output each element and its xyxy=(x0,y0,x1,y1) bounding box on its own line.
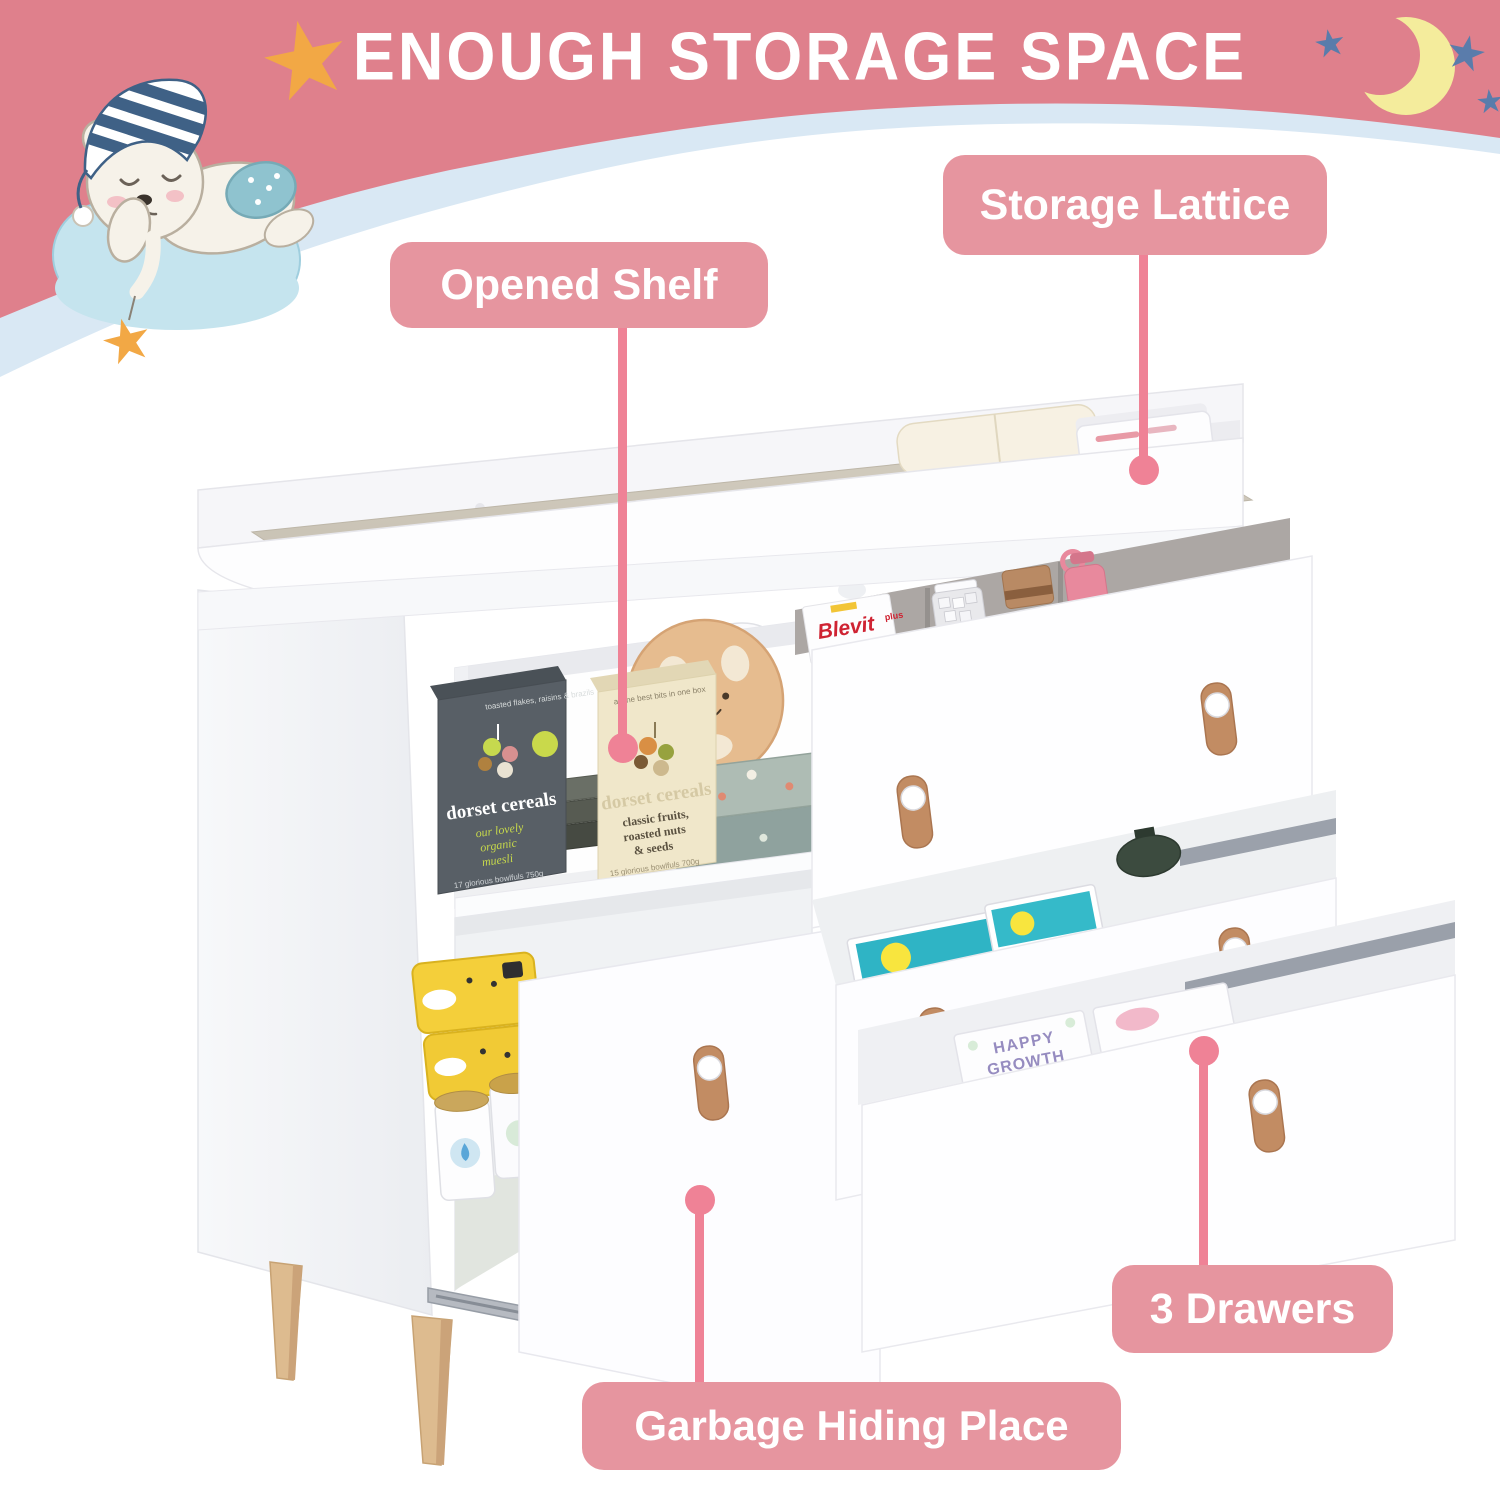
callout-text: Opened Shelf xyxy=(440,261,717,310)
callout-dot-garbage xyxy=(685,1185,715,1215)
wooden-leg-back xyxy=(270,1262,302,1380)
callout-label-opened-shelf: Opened Shelf xyxy=(390,242,768,328)
callout-text: Garbage Hiding Place xyxy=(634,1402,1068,1450)
wooden-leg-front xyxy=(412,1316,452,1465)
callout-line-opened-shelf xyxy=(618,326,627,736)
callout-line-garbage xyxy=(695,1210,704,1384)
callout-text: Storage Lattice xyxy=(980,181,1291,230)
product-infographic: ENOUGH STORAGE SPACE xyxy=(0,0,1500,1500)
cocoa-jar xyxy=(1001,565,1054,609)
cereal-box-cream: all the best bits in one box dorset cere… xyxy=(590,660,716,880)
callout-label-garbage-hiding-place: Garbage Hiding Place xyxy=(582,1382,1121,1470)
callout-line-3-drawers xyxy=(1199,1062,1208,1267)
callout-dot-opened-shelf xyxy=(608,733,638,763)
callout-text: 3 Drawers xyxy=(1150,1285,1356,1334)
callout-dot-storage-lattice xyxy=(1129,455,1159,485)
callout-label-storage-lattice: Storage Lattice xyxy=(943,155,1327,255)
callout-dot-3-drawers xyxy=(1189,1036,1219,1066)
callout-label-3-drawers: 3 Drawers xyxy=(1112,1265,1393,1353)
left-side-panel xyxy=(198,590,432,1315)
callout-line-storage-lattice xyxy=(1139,254,1148,458)
